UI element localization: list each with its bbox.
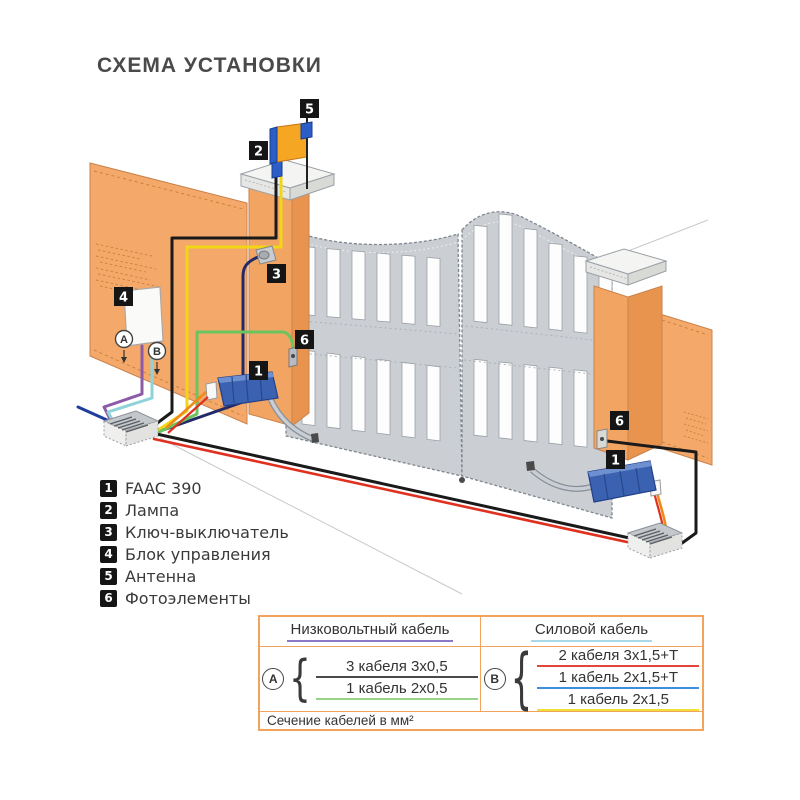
legend-item: 5 Антенна — [100, 565, 289, 587]
cable-row: 1 кабель 2x1,5 — [537, 691, 699, 711]
group-a-badge: A — [262, 668, 284, 690]
marker-control-unit: 4 — [114, 287, 133, 306]
legend-label: Антенна — [125, 567, 196, 586]
brace-icon: { — [289, 650, 311, 708]
svg-text:2: 2 — [254, 145, 263, 160]
marker-lamp: 2 — [249, 141, 268, 160]
cable-table-footer: Сечение кабелей в мм² — [260, 711, 702, 729]
legend-label: FAAC 390 — [125, 479, 202, 498]
marker-key-switch: 3 — [267, 264, 286, 283]
legend-number: 4 — [100, 546, 117, 563]
svg-text:A: A — [120, 334, 128, 346]
marker-photocell-left: 6 — [295, 330, 314, 349]
svg-text:5: 5 — [305, 103, 314, 118]
legend-item: 1 FAAC 390 — [100, 477, 289, 499]
photocell-left — [289, 347, 297, 367]
marker-faac-right: 1 — [606, 450, 625, 469]
cable-table-header-low-voltage: Низковольтный кабель — [260, 617, 481, 647]
legend-number: 1 — [100, 480, 117, 497]
group-b-badge: B — [484, 668, 506, 690]
legend-item: 3 Ключ-выключатель — [100, 521, 289, 543]
svg-text:4: 4 — [119, 291, 128, 306]
legend: 1 FAAC 390 2 Лампа 3 Ключ-выключатель 4 … — [100, 477, 289, 609]
legend-item: 2 Лампа — [100, 499, 289, 521]
junction-box-right — [628, 523, 682, 558]
legend-item: 6 Фотоэлементы — [100, 587, 289, 609]
svg-text:1: 1 — [254, 365, 263, 380]
legend-label: Фотоэлементы — [125, 589, 251, 608]
arm-bracket-right — [526, 461, 535, 471]
legend-number: 3 — [100, 524, 117, 541]
legend-label: Блок управления — [125, 545, 271, 564]
cable-table: Низковольтный кабель Силовой кабель A { … — [258, 615, 704, 731]
marker-antenna: 5 — [300, 99, 319, 118]
legend-number: 2 — [100, 502, 117, 519]
legend-number: 5 — [100, 568, 117, 585]
cable-row: 1 кабель 2x0,5 — [316, 680, 478, 700]
svg-text:1: 1 — [611, 454, 620, 469]
cable-group-b: B { 2 кабеля 3x1,5+T 1 кабель 2x1,5+T 1 … — [481, 647, 702, 711]
legend-label: Ключ-выключатель — [125, 523, 289, 542]
brace-icon: { — [511, 640, 533, 718]
marker-photocell-right: 6 — [610, 411, 629, 430]
legend-number: 6 — [100, 590, 117, 607]
legend-item: 4 Блок управления — [100, 543, 289, 565]
cable-group-a: A { 3 кабеля 3x0,5 1 кабель 2x0,5 — [260, 647, 481, 711]
svg-text:6: 6 — [300, 334, 309, 349]
page: A B 2 5 3 4 — [0, 0, 800, 800]
cable-row: 2 кабеля 3x1,5+T — [537, 647, 699, 667]
junction-box-left — [104, 411, 158, 446]
photocell-right — [597, 429, 607, 449]
cable-row: 3 кабеля 3x0,5 — [316, 658, 478, 678]
marker-faac-left: 1 — [249, 361, 268, 380]
legend-label: Лампа — [125, 501, 179, 520]
page-title: СХЕМА УСТАНОВКИ — [97, 54, 322, 78]
arm-bracket-left — [311, 433, 319, 443]
wire-feed-blue — [78, 407, 107, 420]
svg-text:6: 6 — [615, 415, 624, 430]
gate-center-stop — [459, 477, 465, 483]
right-wall — [660, 314, 712, 465]
cable-row: 1 кабель 2x1,5+T — [537, 669, 699, 689]
svg-text:B: B — [153, 346, 161, 358]
svg-text:3: 3 — [272, 268, 281, 283]
